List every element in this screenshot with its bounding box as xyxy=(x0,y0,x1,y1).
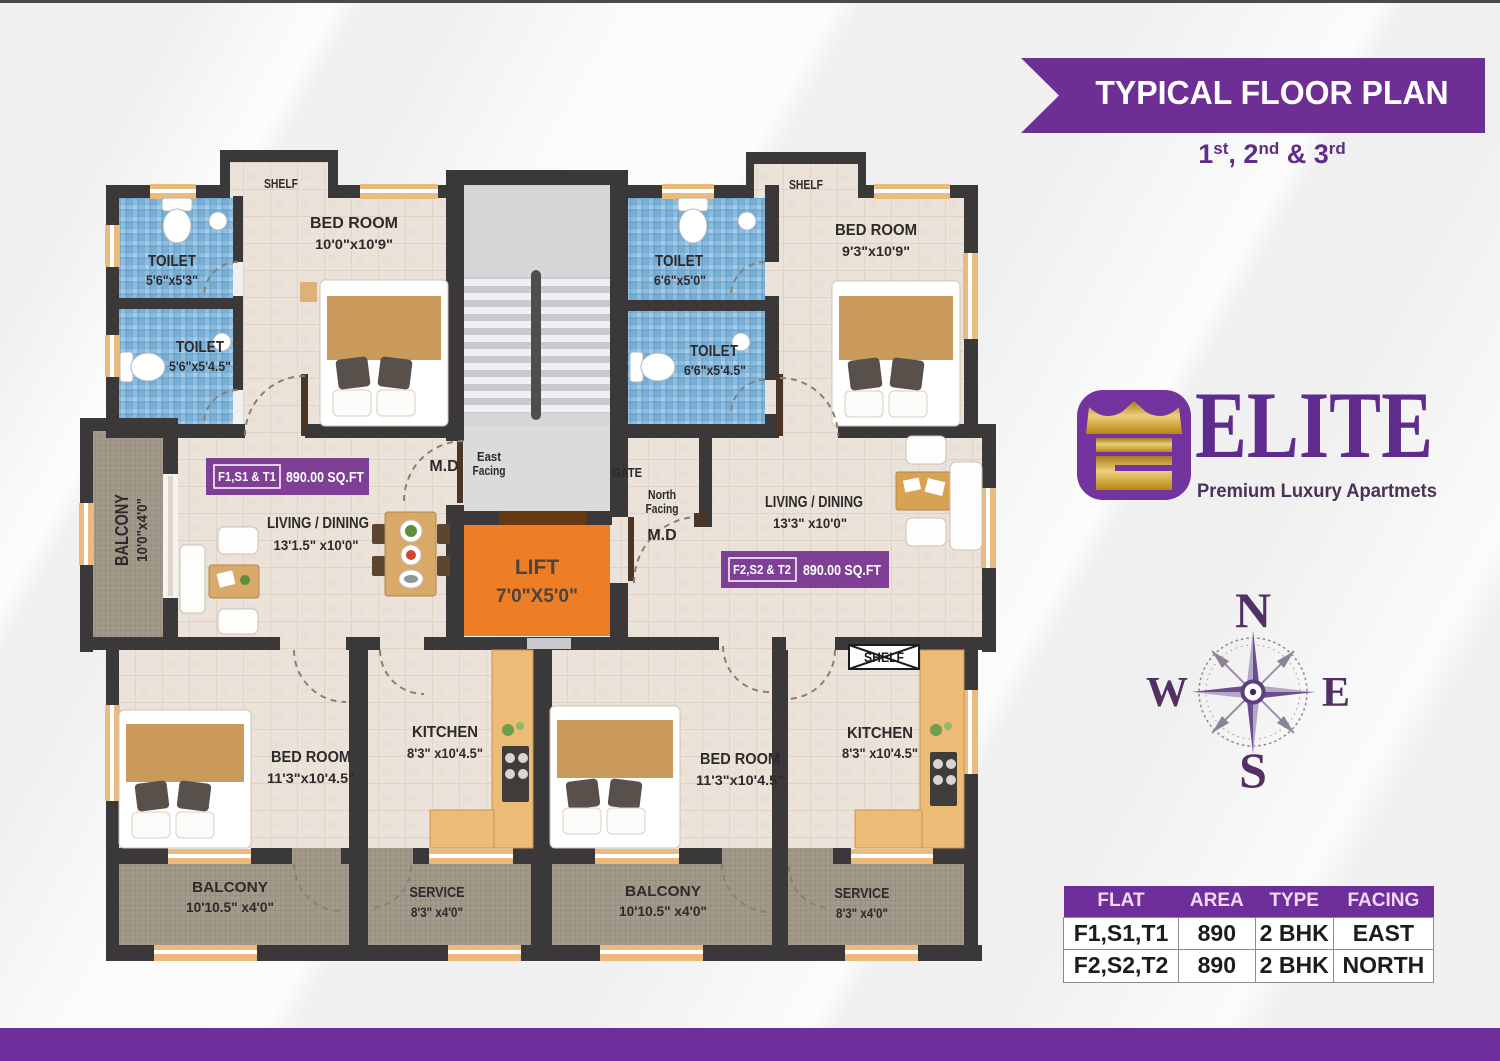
svg-text:LIVING / DINING: LIVING / DINING xyxy=(765,494,863,511)
svg-text:10'0"x4'0": 10'0"x4'0" xyxy=(135,498,151,562)
svg-text:Facing: Facing xyxy=(646,502,679,516)
svg-text:TOILET: TOILET xyxy=(148,253,196,270)
svg-text:BED ROOM: BED ROOM xyxy=(835,222,917,239)
svg-text:W: W xyxy=(1146,670,1188,716)
svg-text:SERVICE: SERVICE xyxy=(835,885,890,902)
svg-text:TOILET: TOILET xyxy=(655,253,703,270)
svg-text:M.D: M.D xyxy=(429,458,458,475)
svg-text:SHELF: SHELF xyxy=(264,176,298,191)
svg-text:KITCHEN: KITCHEN xyxy=(847,725,913,742)
svg-text:5'6"x5'4.5": 5'6"x5'4.5" xyxy=(169,358,231,374)
svg-text:TOILET: TOILET xyxy=(690,343,738,360)
svg-text:Facing: Facing xyxy=(473,464,506,478)
svg-text:8'3" x4'0": 8'3" x4'0" xyxy=(836,905,888,921)
svg-text:KITCHEN: KITCHEN xyxy=(412,724,478,741)
svg-text:SHELF: SHELF xyxy=(789,177,823,192)
svg-text:5'6"x5'3": 5'6"x5'3" xyxy=(146,272,198,288)
svg-text:8'3" x4'0": 8'3" x4'0" xyxy=(411,904,463,920)
svg-text:ELITE: ELITE xyxy=(1195,386,1433,478)
svg-text:8'3" x10'4.5": 8'3" x10'4.5" xyxy=(842,745,918,761)
svg-text:10'10.5" x4'0": 10'10.5" x4'0" xyxy=(619,903,707,919)
svg-text:8'3" x10'4.5": 8'3" x10'4.5" xyxy=(407,745,483,761)
svg-text:TOILET: TOILET xyxy=(176,339,224,356)
svg-text:11'3"x10'4.5": 11'3"x10'4.5" xyxy=(267,770,355,786)
svg-text:F2,S2 & T2: F2,S2 & T2 xyxy=(733,563,791,577)
svg-text:7'0"X5'0": 7'0"X5'0" xyxy=(496,586,578,607)
svg-text:East: East xyxy=(477,450,502,464)
svg-text:890.00 SQ.FT: 890.00 SQ.FT xyxy=(803,562,881,579)
svg-text:890.00 SQ.FT: 890.00 SQ.FT xyxy=(286,469,364,486)
svg-text:N: N xyxy=(1235,582,1271,638)
svg-text:13'1.5" x10'0": 13'1.5" x10'0" xyxy=(274,537,359,553)
svg-text:9'3"x10'9": 9'3"x10'9" xyxy=(842,243,910,259)
svg-text:BALCONY: BALCONY xyxy=(625,883,701,900)
svg-text:SERVICE: SERVICE xyxy=(410,884,465,901)
svg-text:BED ROOM: BED ROOM xyxy=(700,751,780,768)
svg-text:BED ROOM: BED ROOM xyxy=(310,215,398,232)
svg-text:10'10.5" x4'0": 10'10.5" x4'0" xyxy=(186,899,274,915)
svg-text:BED ROOM: BED ROOM xyxy=(271,749,351,766)
svg-text:GATE: GATE xyxy=(612,465,642,480)
svg-text:6'6"x5'4.5": 6'6"x5'4.5" xyxy=(684,362,746,378)
svg-text:BALCONY: BALCONY xyxy=(112,494,132,566)
svg-text:LIVING / DINING: LIVING / DINING xyxy=(267,515,369,532)
svg-text:E: E xyxy=(1322,670,1350,716)
svg-text:6'6"x5'0": 6'6"x5'0" xyxy=(654,272,706,288)
svg-text:10'0"x10'9": 10'0"x10'9" xyxy=(315,236,393,252)
svg-text:Premium Luxury Apartmets: Premium Luxury Apartmets xyxy=(1197,481,1437,502)
svg-text:M.D: M.D xyxy=(647,527,676,544)
svg-text:BALCONY: BALCONY xyxy=(192,879,268,896)
svg-text:F1,S1 & T1: F1,S1 & T1 xyxy=(218,470,276,484)
svg-text:LIFT: LIFT xyxy=(515,556,559,579)
svg-text:North: North xyxy=(648,488,676,502)
svg-text:11'3"x10'4.5": 11'3"x10'4.5" xyxy=(696,772,784,788)
svg-text:13'3" x10'0": 13'3" x10'0" xyxy=(773,515,847,531)
